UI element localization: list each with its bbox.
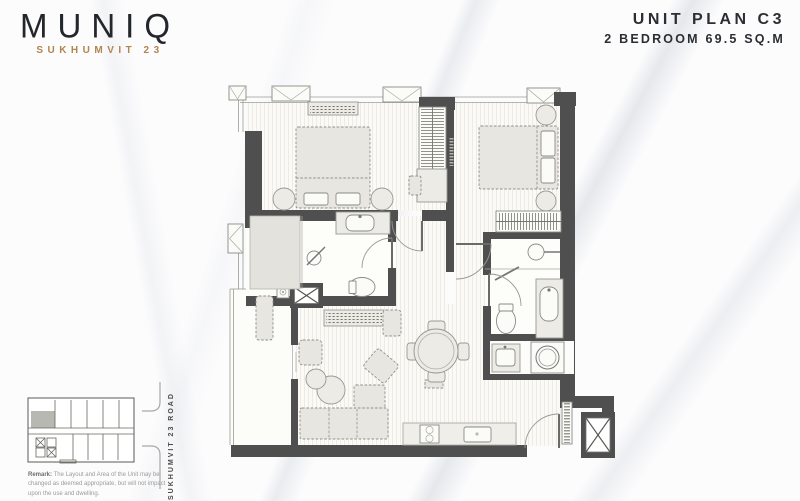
ac-console-icon xyxy=(308,102,358,115)
vanity-sink-icon xyxy=(536,279,563,338)
window-marker-icon xyxy=(383,87,421,102)
chair-icon xyxy=(409,176,421,195)
page: MUNIQ SUKHUMVIT 23 UNIT PLAN C3 2 BEDROO… xyxy=(0,0,800,501)
toilet-icon xyxy=(497,304,516,334)
key-plan xyxy=(28,398,134,463)
coffee-table-icon xyxy=(306,369,326,389)
desk-icon xyxy=(417,169,447,202)
nightstand-icon xyxy=(536,105,556,125)
wardrobe-icon xyxy=(496,211,561,232)
planter-icon xyxy=(256,296,273,340)
nightstand-icon xyxy=(536,191,556,211)
bed-icon xyxy=(479,126,558,189)
nightstand-icon xyxy=(371,188,393,210)
road-label: SUKHUMVIT 23 ROAD xyxy=(168,392,175,500)
sliding-door-icon xyxy=(293,345,297,379)
kitchen-sink-icon xyxy=(464,427,491,442)
wardrobe-icon xyxy=(419,107,446,169)
shower-tray xyxy=(250,216,300,289)
floor-plan xyxy=(228,86,615,458)
floor-plan-svg xyxy=(0,0,800,501)
counter-sink-icon xyxy=(492,344,520,372)
service-shaft-icon xyxy=(581,412,615,458)
tv-console-icon xyxy=(324,310,384,326)
toilet-icon xyxy=(349,278,375,297)
remark: Remark: The Layout and Area of the Unit … xyxy=(28,471,168,499)
remark-label: Remark: xyxy=(28,472,52,478)
window-marker-icon xyxy=(228,224,243,253)
bed-icon xyxy=(296,127,370,208)
key-plan-highlight-unit xyxy=(31,411,55,428)
lounge-pouf-icon xyxy=(299,340,322,365)
entry-closet-strip xyxy=(562,402,572,444)
laundry-nook xyxy=(490,341,574,374)
stove-icon xyxy=(420,425,439,443)
window-marker-icon xyxy=(229,86,246,100)
vanity-sink-icon xyxy=(336,212,390,234)
washing-machine-icon xyxy=(531,342,564,373)
window-marker-icon xyxy=(272,86,310,101)
nightstand-icon xyxy=(273,188,295,210)
armchair-icon xyxy=(383,310,401,336)
